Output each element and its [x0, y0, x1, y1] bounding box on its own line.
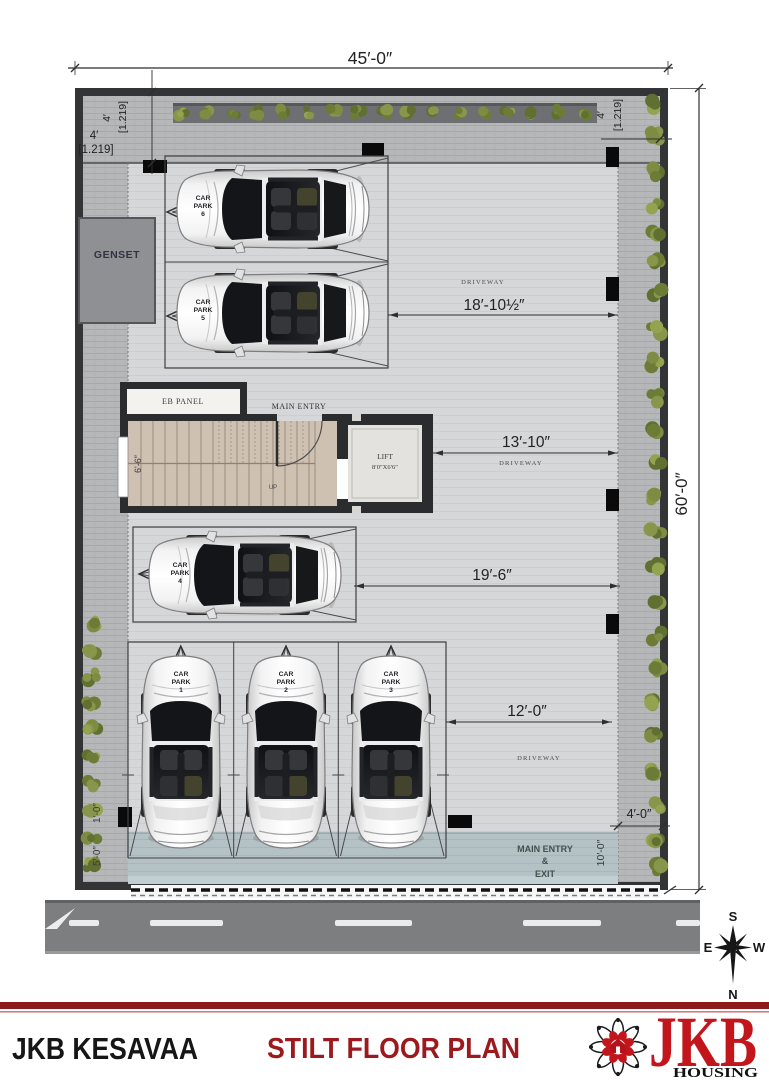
svg-text:5: 5 — [201, 315, 205, 322]
svg-text:&: & — [542, 856, 549, 866]
svg-text:CAR: CAR — [279, 671, 294, 678]
svg-text:EB PANEL: EB PANEL — [162, 397, 204, 406]
svg-text:PARK: PARK — [171, 570, 190, 577]
svg-text:CAR: CAR — [196, 299, 211, 306]
svg-text:GENSET: GENSET — [94, 249, 140, 261]
svg-text:MAIN ENTRY: MAIN ENTRY — [272, 402, 327, 411]
svg-text:6: 6 — [201, 211, 205, 218]
svg-text:CAR: CAR — [173, 562, 188, 569]
svg-text:CAR: CAR — [196, 195, 211, 202]
svg-text:CAR: CAR — [174, 671, 189, 678]
svg-text:19′-6″: 19′-6″ — [472, 567, 512, 584]
svg-text:10′-0″: 10′-0″ — [595, 839, 607, 866]
svg-text:18′-10½″: 18′-10½″ — [464, 297, 525, 314]
svg-text:MAIN ENTRY: MAIN ENTRY — [517, 844, 573, 854]
svg-text:4′-0″: 4′-0″ — [627, 807, 652, 821]
svg-text:5′-0″: 5′-0″ — [92, 846, 103, 866]
svg-text:PARK: PARK — [277, 679, 296, 686]
svg-text:6'-6″: 6'-6″ — [133, 454, 143, 473]
svg-text:1: 1 — [179, 687, 183, 694]
svg-text:STILT FLOOR PLAN: STILT FLOOR PLAN — [267, 1033, 520, 1065]
svg-text:W: W — [753, 940, 766, 955]
svg-text:60′-0″: 60′-0″ — [672, 472, 691, 515]
svg-text:LIFT: LIFT — [377, 452, 393, 461]
svg-text:13′-10″: 13′-10″ — [502, 434, 551, 451]
svg-text:2: 2 — [284, 687, 288, 694]
svg-text:PARK: PARK — [172, 679, 191, 686]
svg-text:DRIVEWAY: DRIVEWAY — [461, 279, 505, 286]
svg-text:PARK: PARK — [194, 307, 213, 314]
svg-text:JKB KESAVAA: JKB KESAVAA — [12, 1031, 198, 1066]
svg-text:[1.219]: [1.219] — [78, 144, 113, 156]
svg-text:EXIT: EXIT — [535, 869, 556, 879]
svg-text:12′-0″: 12′-0″ — [507, 703, 547, 720]
svg-text:8′0″X6′6″: 8′0″X6′6″ — [372, 464, 398, 471]
svg-text:PARK: PARK — [382, 679, 401, 686]
svg-text:DRIVEWAY: DRIVEWAY — [499, 460, 543, 467]
svg-text:4′: 4′ — [595, 111, 607, 119]
svg-text:DRIVEWAY: DRIVEWAY — [517, 755, 561, 762]
svg-text:PARK: PARK — [194, 203, 213, 210]
svg-text:4: 4 — [178, 578, 182, 585]
svg-text:3: 3 — [389, 687, 393, 694]
svg-text:HOUSING: HOUSING — [673, 1066, 758, 1081]
svg-text:N: N — [728, 987, 737, 1002]
svg-text:4′: 4′ — [101, 114, 113, 122]
svg-text:S: S — [729, 909, 738, 924]
svg-text:45′-0″: 45′-0″ — [348, 48, 393, 68]
svg-text:CAR: CAR — [384, 671, 399, 678]
svg-text:1′-0″: 1′-0″ — [92, 803, 103, 823]
svg-text:E: E — [704, 940, 713, 955]
svg-text:[1.219]: [1.219] — [117, 101, 129, 133]
svg-text:[1.219]: [1.219] — [612, 99, 624, 131]
svg-text:4′: 4′ — [90, 130, 99, 142]
svg-text:UP: UP — [269, 485, 277, 491]
